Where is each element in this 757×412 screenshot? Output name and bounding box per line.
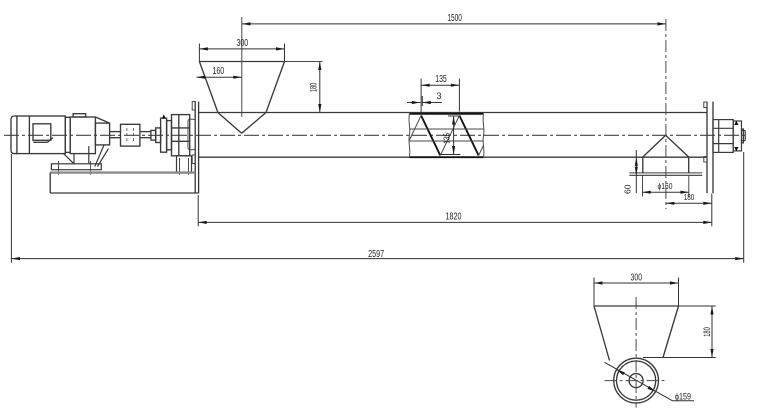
svg-text:180: 180 bbox=[702, 327, 712, 337]
svg-text:180: 180 bbox=[684, 192, 695, 202]
svg-text:3: 3 bbox=[436, 91, 441, 101]
svg-text:135: 135 bbox=[435, 74, 447, 85]
svg-text:300: 300 bbox=[236, 38, 248, 49]
svg-text:60: 60 bbox=[624, 184, 633, 194]
svg-text:160: 160 bbox=[212, 66, 224, 77]
svg-text:1820: 1820 bbox=[446, 212, 462, 223]
svg-text:1500: 1500 bbox=[447, 13, 462, 24]
svg-text:135: 135 bbox=[441, 133, 451, 144]
svg-text:180: 180 bbox=[309, 83, 319, 93]
svg-text:ϕ160: ϕ160 bbox=[658, 181, 673, 191]
svg-text:ϕ159: ϕ159 bbox=[675, 392, 691, 402]
svg-text:2597: 2597 bbox=[368, 249, 384, 260]
svg-text:300: 300 bbox=[631, 273, 643, 284]
